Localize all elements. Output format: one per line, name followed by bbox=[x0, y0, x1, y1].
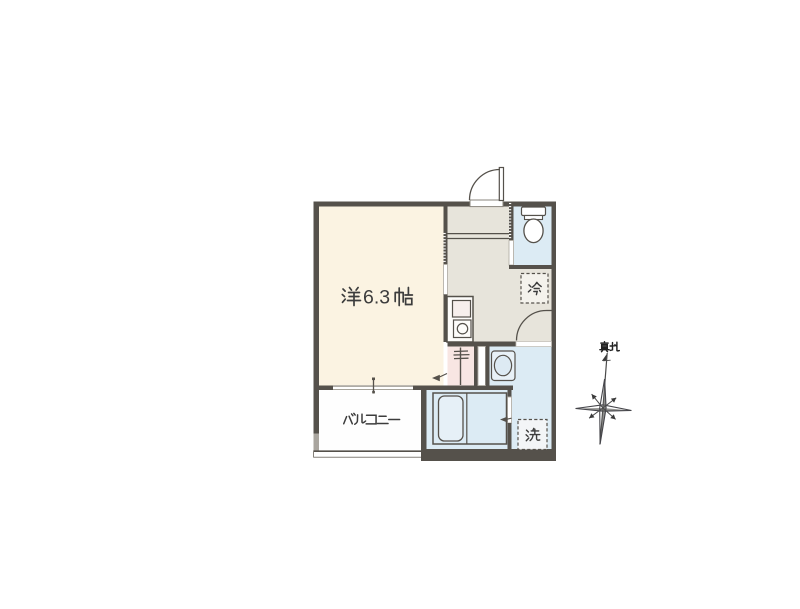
svg-text:6.3: 6.3 bbox=[363, 287, 390, 309]
